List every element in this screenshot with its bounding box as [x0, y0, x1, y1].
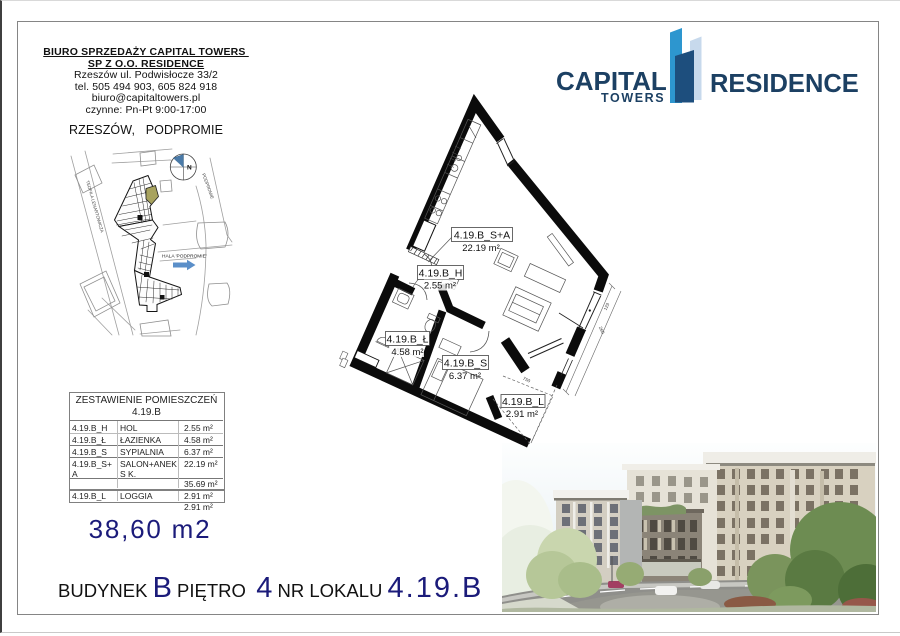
svg-text:2.91 m²: 2.91 m²: [506, 409, 538, 420]
svg-text:260: 260: [598, 326, 606, 335]
svg-text:4.19.B_Ł: 4.19.B_Ł: [386, 334, 428, 346]
svg-text:4.19.B_L: 4.19.B_L: [502, 396, 544, 408]
svg-text:N: N: [187, 165, 192, 172]
svg-text:4.19.B_S+A: 4.19.B_S+A: [454, 230, 510, 242]
svg-text:4.19.B_S: 4.19.B_S: [444, 358, 487, 370]
svg-text:123: 123: [603, 302, 611, 311]
svg-text:4.19.B_H: 4.19.B_H: [419, 268, 463, 280]
svg-text:22.19 m²: 22.19 m²: [462, 243, 500, 254]
svg-text:4.58 m²: 4.58 m²: [391, 347, 423, 358]
svg-text:750: 750: [522, 376, 531, 384]
svg-text:HALA 'PODPROMIE': HALA 'PODPROMIE': [162, 254, 207, 260]
svg-text:2.55 m²: 2.55 m²: [424, 281, 456, 292]
svg-text:6.37 m²: 6.37 m²: [449, 371, 481, 382]
